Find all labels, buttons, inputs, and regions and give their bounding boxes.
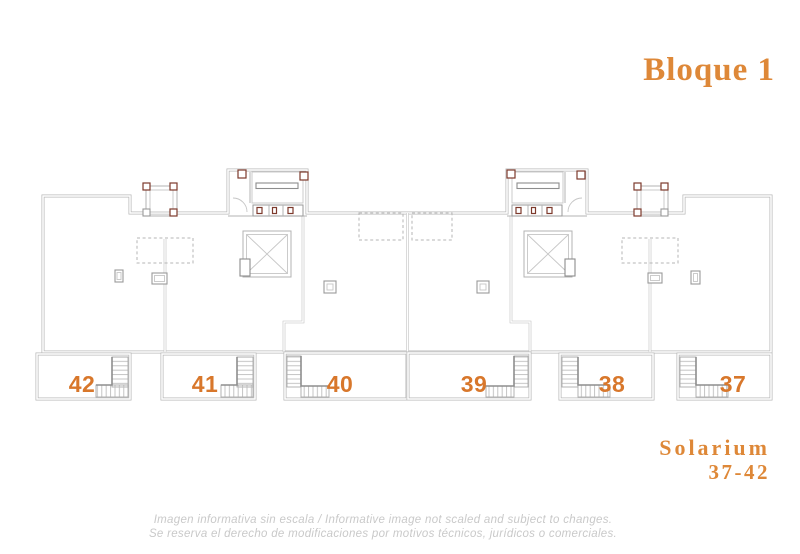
column-structure-left [143,183,177,216]
terraces [37,353,771,399]
stair-core-right [507,170,585,216]
block-title: Bloque 1 [643,52,775,89]
floor-label-range: 37-42 [709,460,771,485]
disclaimer-line-1: Imagen informativa sin escala / Informat… [0,513,766,527]
unit-label-41: 41 [175,371,235,398]
unit-label-37: 37 [703,371,763,398]
stair-core-left [233,170,308,216]
elevator-shaft-right [524,231,575,277]
door-arc-right [568,198,582,212]
elevator-shaft-left [240,231,291,277]
unit-label-40: 40 [310,371,370,398]
unit-label-42: 42 [52,371,112,398]
floor-label-name: Solarium [659,435,770,461]
floor-plan-sheet: Bloque 1 42 41 40 39 38 37 Solarium 37-4… [0,0,800,554]
unit-label-38: 38 [582,371,642,398]
unit-label-39: 39 [444,371,504,398]
column-structure-right [634,183,668,216]
disclaimer-line-2: Se reserva el derecho de modificaciones … [0,527,766,541]
door-arc-left [233,198,247,212]
interior-walls [165,213,650,352]
